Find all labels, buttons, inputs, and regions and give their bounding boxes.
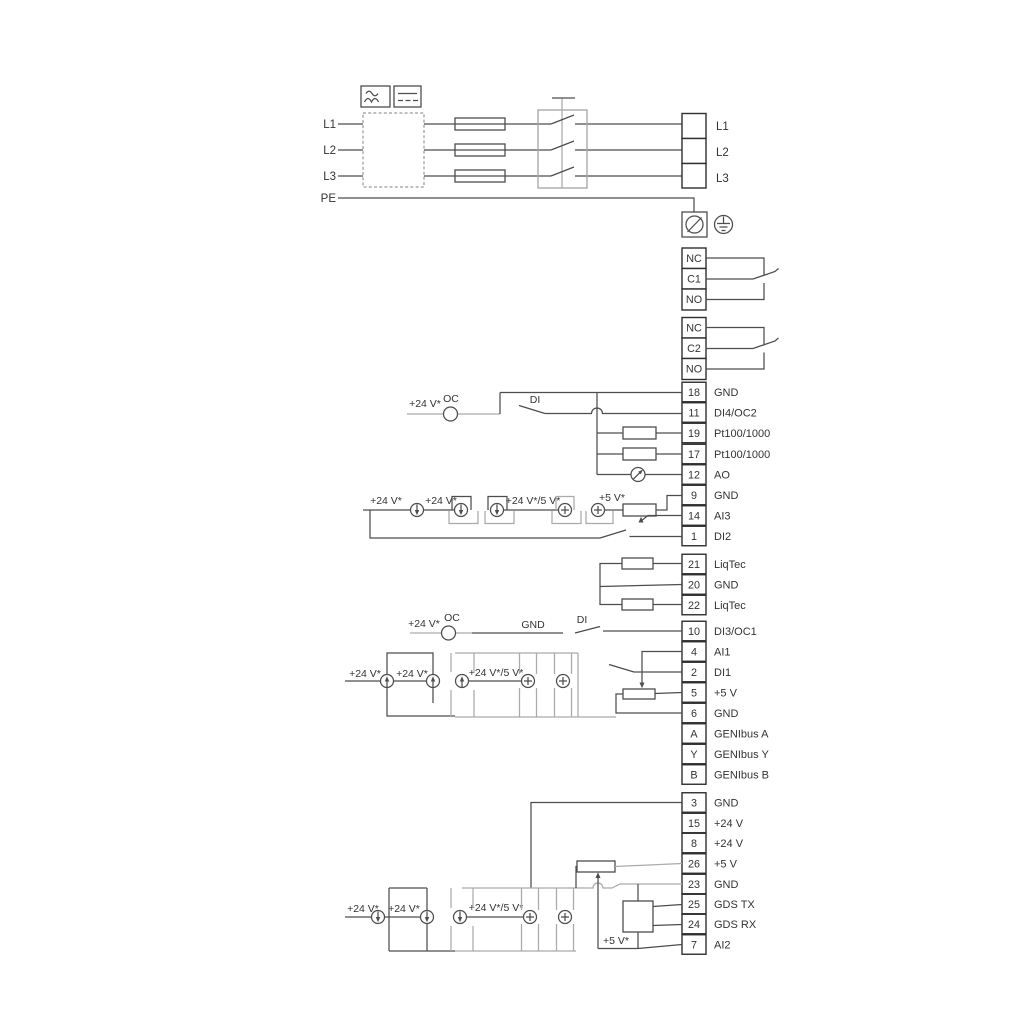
ai1-supply-label-1: +24 V* [349, 668, 381, 680]
relay2-contact [706, 328, 779, 370]
terminal-10: 10 [688, 626, 700, 638]
terminal-9-label: GND [714, 490, 739, 502]
terminal-20: 20 [688, 579, 700, 591]
option-bracket-bottom-row1 [449, 511, 613, 524]
earth-ground-symbol [715, 216, 733, 234]
terminal-21-label: LiqTec [714, 559, 746, 571]
ai2-supply-label-4: +5 V* [603, 935, 629, 947]
ai2-pot-wiper-arrow [596, 872, 601, 878]
terminal-11-label: DI4/OC2 [714, 407, 757, 419]
terminal-a-label: GENIbus A [714, 728, 769, 740]
open-collector-circle [444, 407, 458, 421]
terminal-b: B [690, 769, 697, 781]
pt100-resistor-19 [623, 427, 656, 439]
ai1-pot-wiper-arrow [640, 683, 645, 689]
terminal-14: 14 [688, 510, 700, 522]
oc1-supply-label: +24 V* [408, 618, 440, 630]
terminal-10-label: DI3/OC1 [714, 626, 757, 638]
terminal-1: 1 [691, 531, 697, 543]
di1-switch-blade [609, 665, 634, 673]
di2-switch-blade [600, 530, 626, 538]
io-group3-terminals: 3GND 15+24 V 8+24 V 26+5 V 23GND 25GDS T… [682, 793, 757, 955]
terminal-25-label: GDS TX [714, 899, 755, 911]
terminal-20-label: GND [714, 579, 739, 591]
relay1-contact [706, 258, 779, 300]
ai3-supply-label-4: +5 V* [599, 492, 625, 504]
pe-conductor [338, 198, 694, 212]
ac-symbol-box [361, 86, 390, 107]
terminal-12-label: AO [714, 469, 730, 481]
terminal-22-label: LiqTec [714, 600, 746, 612]
terminal-9: 9 [691, 490, 697, 502]
io-group3-wiring: +24 V* +24 V* +24 V*/5 V* +5 V* [345, 803, 682, 952]
terminal-19-label: Pt100/1000 [714, 428, 770, 440]
terminal-25: 25 [688, 899, 700, 911]
terminal-5: 5 [691, 687, 697, 699]
io-group1-wiring: +24 V* OC DI +24 V* +24 V* +24 V*/5 V* +… [363, 393, 682, 539]
mains-output-terminals: L1 L2 L3 [682, 114, 729, 189]
input-label-l1: L1 [323, 119, 336, 131]
terminal-4: 4 [691, 646, 697, 658]
input-label-l2: L2 [323, 145, 336, 157]
io-group1-terminals: 18GND 11DI4/OC2 19Pt100/1000 17Pt100/100… [682, 382, 770, 546]
mains-conductors [338, 124, 694, 212]
liqtec-resistor-22 [622, 599, 653, 610]
terminal-15-label: +24 V [714, 818, 744, 830]
di4-switch-blade [519, 406, 545, 414]
wiring-diagram: L1 L2 L3 PE L1 L2 L3 [0, 0, 1024, 1024]
liqtec-terminals: 21LiqTec 20GND 22LiqTec [682, 554, 746, 615]
open-collector-circle-2 [442, 626, 456, 640]
terminal-8: 8 [691, 838, 697, 850]
mains-input-labels: L1 L2 L3 PE [321, 119, 337, 205]
wiring-diagram-page: L1 L2 L3 PE L1 L2 L3 [0, 0, 1024, 1024]
di3-label: DI [577, 614, 588, 626]
ai2-supply-label-2: +24 V* [388, 903, 420, 915]
io-group2-terminals: 10DI3/OC1 4AI1 2DI1 5+5 V 6GND AGENIbus … [682, 621, 769, 784]
terminal-8-label: +24 V [714, 838, 744, 850]
oc2-supply-label: +24 V* [409, 398, 441, 410]
terminal-y-label: GENIbus Y [714, 749, 769, 761]
ai1-supply-label-3: +24 V*/5 V* [469, 667, 524, 679]
di3-gnd-label: GND [521, 619, 545, 631]
terminal-18-label: GND [714, 387, 739, 399]
relay1-terminals: NC C1 NO [682, 248, 779, 310]
ai1-supply-label-2: +24 V* [396, 668, 428, 680]
output-label-l3: L3 [716, 173, 729, 185]
terminal-6: 6 [691, 708, 697, 720]
relay2-c2: C2 [687, 343, 701, 355]
main-switch [538, 98, 587, 188]
terminal-7-label: AI2 [714, 939, 731, 951]
terminal-14-label: AI3 [714, 510, 731, 522]
terminal-7: 7 [691, 939, 697, 951]
relay1-no: NO [686, 294, 702, 306]
relay2-terminals: NC C2 NO [682, 318, 779, 380]
ai2-supply-label-3: +24 V*/5 V* [469, 902, 524, 914]
terminal-y: Y [690, 749, 697, 761]
terminal-26-label: +5 V [714, 858, 738, 870]
oc2-label: OC [443, 393, 459, 405]
ai1-potentiometer [623, 689, 655, 699]
analog-output-meter-icon [631, 468, 645, 482]
filter-box [363, 113, 424, 187]
gnd23-line [576, 883, 682, 888]
terminal-b-label: GENIbus B [714, 769, 769, 781]
terminal-26: 26 [688, 858, 700, 870]
relay2-nc: NC [686, 323, 702, 335]
terminal-24-label: GDS RX [714, 919, 757, 931]
terminal-1-label: DI2 [714, 531, 731, 543]
terminal-6-label: GND [714, 708, 739, 720]
ai3-supply-label-1: +24 V* [370, 495, 402, 507]
option-rails-row2 [387, 653, 455, 716]
pe-screw-terminal [682, 212, 707, 237]
ai3-potentiometer [623, 504, 656, 516]
output-label-l1: L1 [716, 121, 729, 133]
dc-symbol-box [394, 86, 421, 107]
terminal-18: 18 [688, 387, 700, 399]
output-label-l2: L2 [716, 147, 729, 159]
terminal-2-label: DI1 [714, 667, 731, 679]
terminal-a: A [690, 728, 698, 740]
terminal-2: 2 [691, 667, 697, 679]
ac-waveform-icon [365, 91, 379, 102]
ai3-supply-label-3: +24 V*/5 V* [506, 495, 561, 507]
relay2-no: NO [686, 364, 702, 376]
terminal-23-label: GND [714, 879, 739, 891]
terminal-17-label: Pt100/1000 [714, 449, 770, 461]
terminal-24: 24 [688, 919, 700, 931]
io-group2-wiring: +24 V* OC GND DI +24 V* +24 V* +24 V*/5 … [345, 612, 682, 717]
terminal-11: 11 [688, 407, 699, 419]
terminal-21: 21 [688, 559, 700, 571]
terminal-3: 3 [691, 797, 697, 809]
input-label-l3: L3 [323, 171, 336, 183]
terminal-4-label: AI1 [714, 646, 731, 658]
pt100-resistor-17 [623, 448, 656, 460]
terminal-3-label: GND [714, 797, 739, 809]
ai2-potentiometer [577, 861, 615, 872]
terminal-23: 23 [688, 879, 700, 891]
terminal-17: 17 [688, 449, 700, 461]
relay1-nc: NC [686, 253, 702, 265]
input-label-pe: PE [321, 193, 337, 205]
terminal-5-label: +5 V [714, 687, 738, 699]
di4-label: DI [530, 394, 541, 406]
terminal-15: 15 [688, 818, 700, 830]
terminal-12: 12 [688, 469, 700, 481]
option-rails-row3-gray [451, 888, 576, 951]
di3-switch-blade [575, 627, 600, 634]
relay1-c1: C1 [687, 274, 701, 286]
liqtec-wiring [600, 558, 682, 610]
terminal-19: 19 [688, 428, 700, 440]
oc1-label: OC [444, 612, 460, 624]
liqtec-resistor-21 [622, 558, 653, 569]
gds-sensor-box [623, 901, 653, 932]
terminal-22: 22 [688, 600, 700, 612]
dc-lines-icon [398, 94, 418, 101]
